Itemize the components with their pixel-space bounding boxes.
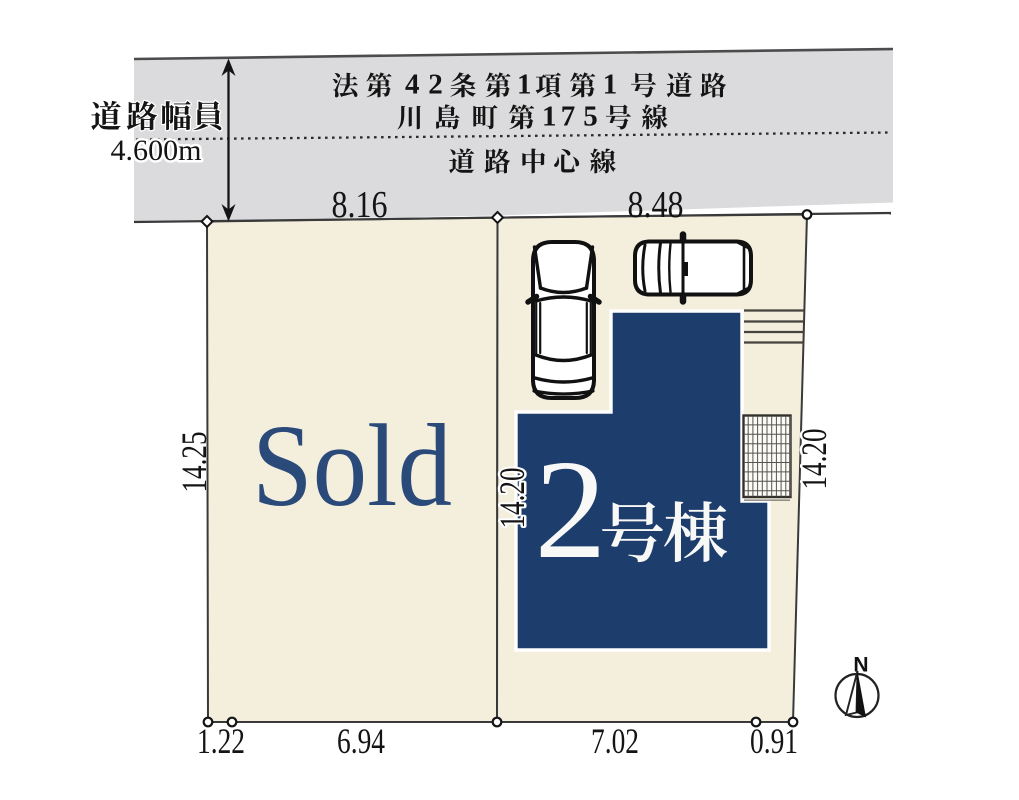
svg-text:1: 1: [542, 101, 557, 133]
svg-text:14.20: 14.20: [794, 429, 834, 490]
svg-text:2: 2: [535, 430, 607, 588]
svg-text:8.16: 8.16: [332, 184, 388, 226]
svg-text:1.22: 1.22: [197, 721, 245, 761]
svg-text:7.02: 7.02: [591, 721, 639, 761]
svg-text:2: 2: [428, 69, 443, 101]
svg-text:N: N: [853, 654, 868, 677]
svg-text:8.48: 8.48: [628, 184, 684, 226]
svg-text:4: 4: [405, 69, 420, 101]
svg-text:1: 1: [603, 69, 618, 101]
svg-text:7: 7: [561, 101, 576, 133]
svg-text:5: 5: [583, 101, 598, 133]
svg-text:4.600m: 4.600m: [111, 134, 202, 167]
svg-text:Sold: Sold: [252, 400, 452, 531]
svg-text:14.20: 14.20: [492, 468, 532, 529]
svg-text:6.94: 6.94: [337, 721, 385, 761]
svg-text:14.25: 14.25: [174, 432, 214, 493]
svg-text:1: 1: [517, 69, 532, 101]
